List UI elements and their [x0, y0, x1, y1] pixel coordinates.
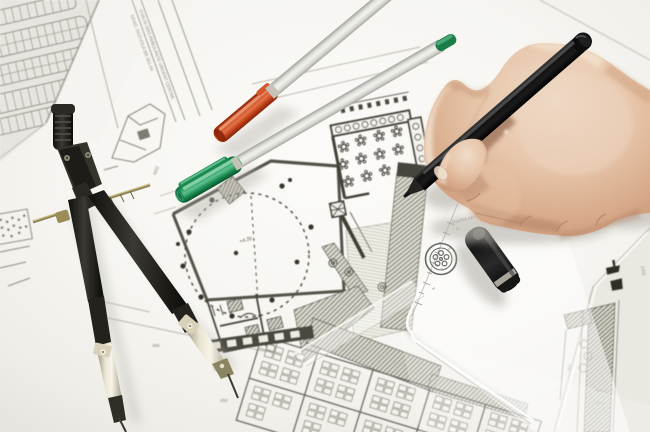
- svg-text:450: 450: [220, 398, 228, 403]
- svg-text:486: 486: [152, 343, 160, 348]
